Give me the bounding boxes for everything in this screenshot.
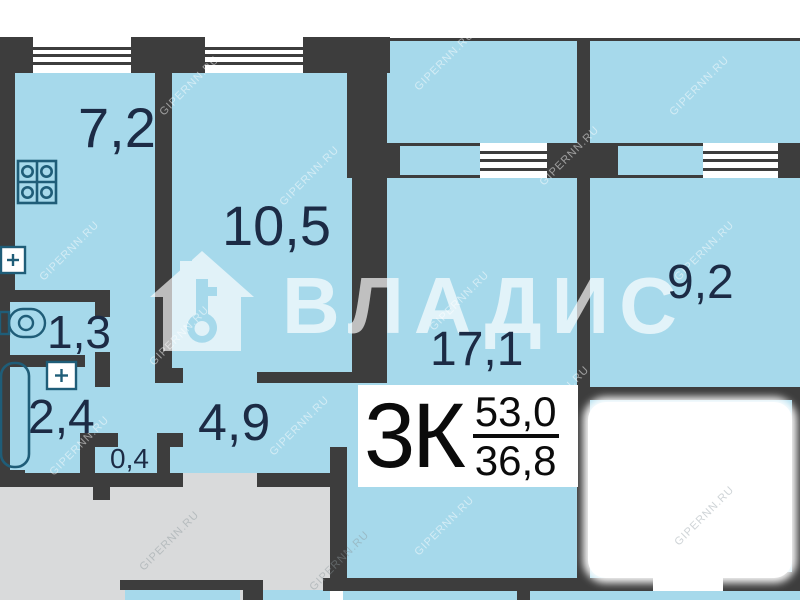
window bbox=[33, 40, 131, 70]
wall bbox=[587, 387, 800, 400]
wall bbox=[257, 372, 387, 383]
wall bbox=[0, 290, 110, 302]
wall bbox=[155, 368, 183, 383]
balcony-parapet bbox=[400, 143, 480, 178]
house-key-icon bbox=[150, 251, 254, 351]
living-area-value: 36,8 bbox=[473, 438, 559, 482]
sink-icon bbox=[46, 361, 77, 390]
room-area-label-hallway: 4,9 bbox=[198, 393, 270, 453]
neighbor-room-fragment bbox=[343, 591, 513, 600]
wall bbox=[385, 38, 800, 41]
wall bbox=[517, 591, 530, 600]
wall bbox=[0, 37, 33, 73]
entrance-door-opening bbox=[183, 473, 257, 487]
window bbox=[703, 143, 778, 178]
stove-icon bbox=[16, 158, 60, 206]
wall bbox=[330, 447, 347, 590]
apartment-info-box: 3К 53,0 36,8 bbox=[358, 385, 578, 487]
wall bbox=[120, 580, 245, 590]
wall bbox=[243, 580, 263, 600]
room-area-label-kitchen: 7,2 bbox=[78, 95, 156, 160]
toilet-icon bbox=[0, 308, 46, 338]
wall bbox=[0, 473, 183, 487]
door-opening bbox=[653, 578, 723, 591]
sink-icon bbox=[0, 246, 26, 274]
room-area-label-bedroom: 9,2 bbox=[667, 255, 734, 310]
wall bbox=[792, 392, 800, 585]
room-area-label-living: 17,1 bbox=[430, 322, 523, 377]
floor-plan: GIPERNN.RU GIPERNN.RU GIPERNN.RU GIPERNN… bbox=[0, 0, 800, 600]
window bbox=[480, 143, 547, 178]
balcony-parapet bbox=[618, 143, 703, 178]
room-area-label-closet: 0,4 bbox=[110, 443, 149, 475]
window bbox=[205, 40, 303, 70]
room-area-label-room105: 10,5 bbox=[222, 193, 331, 258]
wall bbox=[778, 143, 800, 178]
room-area-label-bathroom: 2,4 bbox=[28, 390, 95, 445]
wall bbox=[93, 487, 110, 500]
area-fraction: 53,0 36,8 bbox=[473, 391, 559, 482]
neighbor-room-fragment bbox=[263, 590, 330, 600]
apartment-type-label: 3К bbox=[364, 395, 463, 478]
room-area-label-wc: 1,3 bbox=[47, 305, 111, 359]
wall bbox=[323, 578, 653, 591]
top-margin bbox=[0, 0, 800, 37]
wall bbox=[157, 433, 183, 447]
wall bbox=[347, 143, 400, 178]
wall bbox=[131, 37, 205, 73]
total-area-value: 53,0 bbox=[473, 391, 559, 438]
neighbor-room-fragment bbox=[125, 590, 240, 600]
whiteout-area bbox=[588, 402, 792, 578]
bathtub-icon bbox=[0, 362, 30, 468]
